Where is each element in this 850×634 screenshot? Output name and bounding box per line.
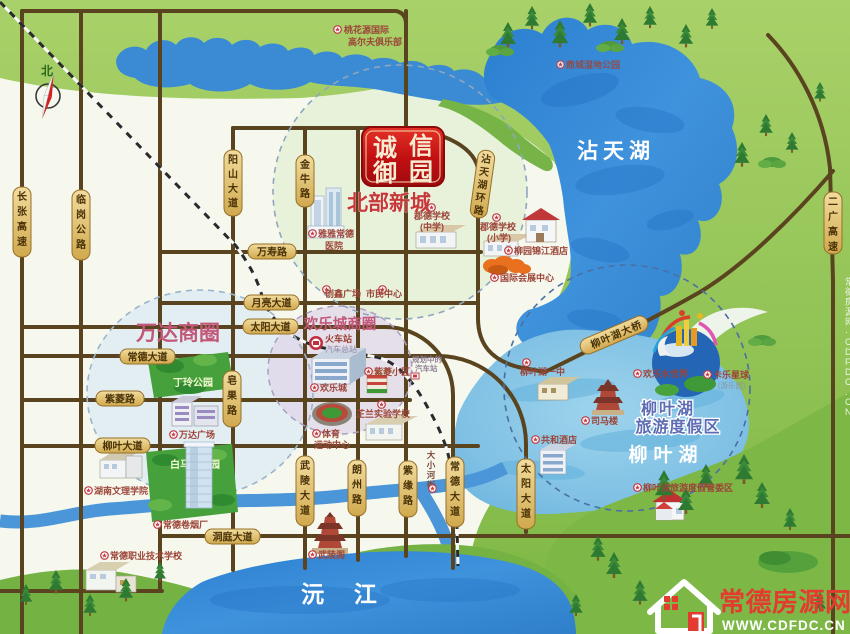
svg-text:沾天湖: 沾天湖 bbox=[577, 139, 655, 163]
svg-text:万寿路: 万寿路 bbox=[256, 246, 288, 259]
svg-text:柳叶湖旅游度假管委区: 柳叶湖旅游度假管委区 bbox=[643, 482, 733, 493]
svg-text:月亮大道: 月亮大道 bbox=[251, 297, 292, 310]
svg-text:芷兰实验学校: 芷兰实验学校 bbox=[356, 408, 411, 419]
svg-text:欢乐水世界: 欢乐水世界 bbox=[642, 368, 688, 379]
svg-text:司马楼: 司马楼 bbox=[591, 415, 618, 426]
svg-text:汽车总站: 汽车总站 bbox=[325, 344, 357, 354]
svg-text:诚: 诚 bbox=[373, 135, 397, 162]
svg-text:万达广场: 万达广场 bbox=[178, 429, 215, 440]
svg-text:大小河街: 大小河街 bbox=[426, 450, 436, 490]
svg-text:(小学): (小学) bbox=[487, 232, 511, 243]
svg-text:御: 御 bbox=[372, 160, 397, 187]
svg-text:柳叶湖一中: 柳叶湖一中 bbox=[520, 366, 565, 377]
svg-text:高尔夫俱乐部: 高尔夫俱乐部 bbox=[348, 36, 402, 47]
svg-text:体育: 体育 bbox=[322, 428, 340, 439]
svg-text:朗州路: 朗州路 bbox=[351, 463, 363, 506]
svg-text:紫菱路: 紫菱路 bbox=[105, 393, 136, 406]
svg-text:(游乐园): (游乐园) bbox=[718, 380, 746, 390]
svg-text:紫菱小区: 紫菱小区 bbox=[374, 366, 410, 377]
svg-text:柳叶湖: 柳叶湖 bbox=[641, 399, 695, 418]
svg-text:旅游度假区: 旅游度假区 bbox=[635, 417, 720, 436]
svg-text:万达商圈: 万达商圈 bbox=[135, 321, 220, 345]
svg-text:柳叶湖: 柳叶湖 bbox=[628, 443, 703, 466]
svg-text:郡德学校: 郡德学校 bbox=[479, 221, 517, 232]
svg-text:火车站: 火车站 bbox=[325, 333, 352, 344]
svg-text:郡德学校: 郡德学校 bbox=[413, 210, 451, 221]
svg-text:规划中的: 规划中的 bbox=[412, 354, 442, 364]
svg-text:太阳大道: 太阳大道 bbox=[250, 321, 291, 334]
svg-text:洞庭大道: 洞庭大道 bbox=[213, 531, 253, 544]
svg-text:共和酒店: 共和酒店 bbox=[541, 434, 577, 445]
svg-text:常德房源网: 常德房源网 bbox=[719, 587, 850, 617]
svg-text:皂果路: 皂果路 bbox=[226, 374, 238, 417]
svg-text:WWW.CDFDC.CN: WWW.CDFDC.CN bbox=[722, 618, 846, 633]
svg-text:常德职业技术学校: 常德职业技术学校 bbox=[110, 550, 183, 561]
svg-text:医院: 医院 bbox=[325, 240, 343, 251]
svg-text:沅 江: 沅 江 bbox=[301, 582, 389, 607]
svg-text:(中学): (中学) bbox=[420, 221, 444, 232]
svg-text:丁玲公园: 丁玲公园 bbox=[173, 376, 213, 389]
svg-text:紫缘路: 紫缘路 bbox=[403, 464, 414, 507]
svg-text:汽车站: 汽车站 bbox=[415, 363, 438, 373]
svg-text:柳叶大道: 柳叶大道 bbox=[103, 440, 143, 453]
svg-text:欢乐城商圈: 欢乐城商圈 bbox=[303, 315, 377, 333]
svg-text:运动中心: 运动中心 bbox=[314, 439, 350, 450]
svg-text:常德大道: 常德大道 bbox=[128, 351, 168, 364]
svg-text:北: 北 bbox=[41, 63, 53, 78]
svg-text:创鑫广场: 创鑫广场 bbox=[324, 288, 361, 299]
svg-text:市民中心: 市民中心 bbox=[366, 288, 402, 299]
svg-text:国际会展中心: 国际会展中心 bbox=[500, 272, 554, 283]
svg-text:园: 园 bbox=[409, 160, 433, 186]
svg-text:湖南文理学院: 湖南文理学院 bbox=[94, 485, 148, 496]
svg-text:雅雅常德: 雅雅常德 bbox=[317, 228, 354, 239]
svg-text:鼎城湿地公园: 鼎城湿地公园 bbox=[566, 59, 620, 70]
svg-text:欢乐城: 欢乐城 bbox=[319, 382, 347, 393]
svg-text:卡乐星球: 卡乐星球 bbox=[713, 369, 750, 380]
svg-text:柳园锦江酒店: 柳园锦江酒店 bbox=[514, 245, 568, 256]
svg-text:武陵阁: 武陵阁 bbox=[318, 549, 345, 560]
svg-text:常德卷烟厂: 常德卷烟厂 bbox=[163, 519, 208, 530]
svg-text:金牛路: 金牛路 bbox=[299, 158, 311, 200]
svg-text:信: 信 bbox=[409, 132, 433, 160]
svg-text:桃花源国际: 桃花源国际 bbox=[344, 24, 389, 35]
